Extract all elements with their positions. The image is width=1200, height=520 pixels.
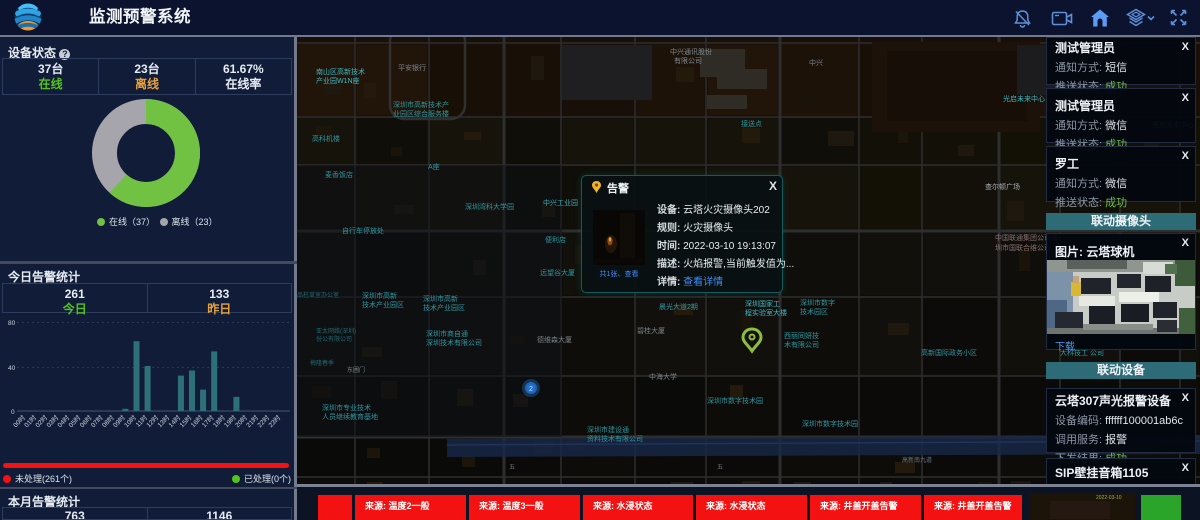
svg-text:人员继续教育基地: 人员继续教育基地 — [322, 412, 378, 421]
svg-text:圳市国联合维公司: 圳市国联合维公司 — [995, 243, 1051, 252]
svg-text:深圳市数字: 深圳市数字 — [800, 298, 835, 307]
svg-text:查尔顿广场: 查尔顿广场 — [985, 182, 1020, 191]
svg-text:业园区综合服务楼: 业园区综合服务楼 — [393, 109, 449, 118]
svg-text:中兴工业园: 中兴工业园 — [543, 198, 578, 207]
svg-text:深圳市高新: 深圳市高新 — [362, 291, 397, 300]
svg-text:深圳技术有限公司: 深圳技术有限公司 — [426, 338, 482, 347]
svg-text:深圳湾科大学园: 深圳湾科大学园 — [465, 202, 514, 211]
svg-text:碧桂大厦: 碧桂大厦 — [637, 326, 665, 335]
svg-text:远望谷大厦: 远望谷大厦 — [540, 268, 575, 277]
svg-text:自行车停放处: 自行车停放处 — [342, 226, 384, 235]
svg-text:光启未来中心: 光启未来中心 — [1003, 94, 1045, 103]
svg-text:中海大学: 中海大学 — [649, 372, 677, 381]
svg-text:五: 五 — [717, 464, 723, 471]
svg-text:中兴通讯股份: 中兴通讯股份 — [670, 47, 712, 56]
svg-text:五: 五 — [509, 464, 515, 471]
svg-text:麦香饭店: 麦香饭店 — [325, 170, 353, 179]
svg-text:深圳市数字技术园: 深圳市数字技术园 — [802, 419, 858, 428]
svg-text:南山区高新技术: 南山区高新技术 — [316, 67, 365, 76]
svg-text:深圳市数字技术园: 深圳市数字技术园 — [707, 396, 763, 405]
svg-text:中兴: 中兴 — [809, 58, 823, 67]
svg-text:晨光大道2期: 晨光大道2期 — [659, 302, 698, 311]
svg-text:2: 2 — [529, 386, 533, 393]
svg-text:深圳市专业技术: 深圳市专业技术 — [322, 403, 371, 412]
svg-text:40: 40 — [8, 365, 16, 372]
svg-text:平安银行: 平安银行 — [398, 63, 426, 72]
svg-text:深圳国家工: 深圳国家工 — [745, 299, 780, 308]
svg-text:东圃门: 东圃门 — [347, 366, 365, 374]
svg-text:深圳市高新: 深圳市高新 — [423, 294, 458, 303]
svg-text:高科机楼: 高科机楼 — [312, 134, 340, 143]
svg-text:高新南九道: 高新南九道 — [902, 456, 932, 464]
svg-text:技术产业园区: 技术产业园区 — [362, 300, 404, 309]
svg-text:技术园区: 技术园区 — [800, 307, 828, 316]
svg-text:接送点: 接送点 — [741, 119, 762, 128]
svg-text:80: 80 — [8, 320, 16, 327]
svg-text:程实验室大楼: 程实验室大楼 — [745, 308, 787, 317]
svg-text:德维森大厦: 德维森大厦 — [537, 335, 572, 344]
svg-text:便利店: 便利店 — [545, 235, 566, 244]
svg-text:亚太网络(深圳): 亚太网络(深圳) — [316, 327, 356, 335]
svg-text:高新国际政务小区: 高新国际政务小区 — [921, 348, 977, 357]
svg-text:产业园W1N座: 产业园W1N座 — [316, 76, 360, 85]
svg-text:有限公司: 有限公司 — [674, 56, 702, 65]
svg-text:份公有限公司: 份公有限公司 — [316, 335, 352, 343]
svg-text:梅隆春季: 梅隆春季 — [310, 359, 334, 367]
svg-text:技术产业园区: 技术产业园区 — [423, 303, 465, 312]
svg-text:深圳市建设通: 深圳市建设通 — [587, 425, 629, 434]
svg-text:品柱草室办公室: 品柱草室办公室 — [297, 291, 339, 299]
svg-text:深圳市高新技术产: 深圳市高新技术产 — [393, 100, 449, 109]
svg-text:A座: A座 — [428, 162, 440, 171]
svg-text:术有限公司: 术有限公司 — [784, 340, 819, 349]
svg-text:西丽同妍技: 西丽同妍技 — [784, 331, 819, 340]
svg-text:资料技术有限公司: 资料技术有限公司 — [587, 434, 643, 443]
svg-text:0: 0 — [11, 409, 15, 416]
svg-text:深圳市商自通: 深圳市商自通 — [426, 329, 468, 338]
